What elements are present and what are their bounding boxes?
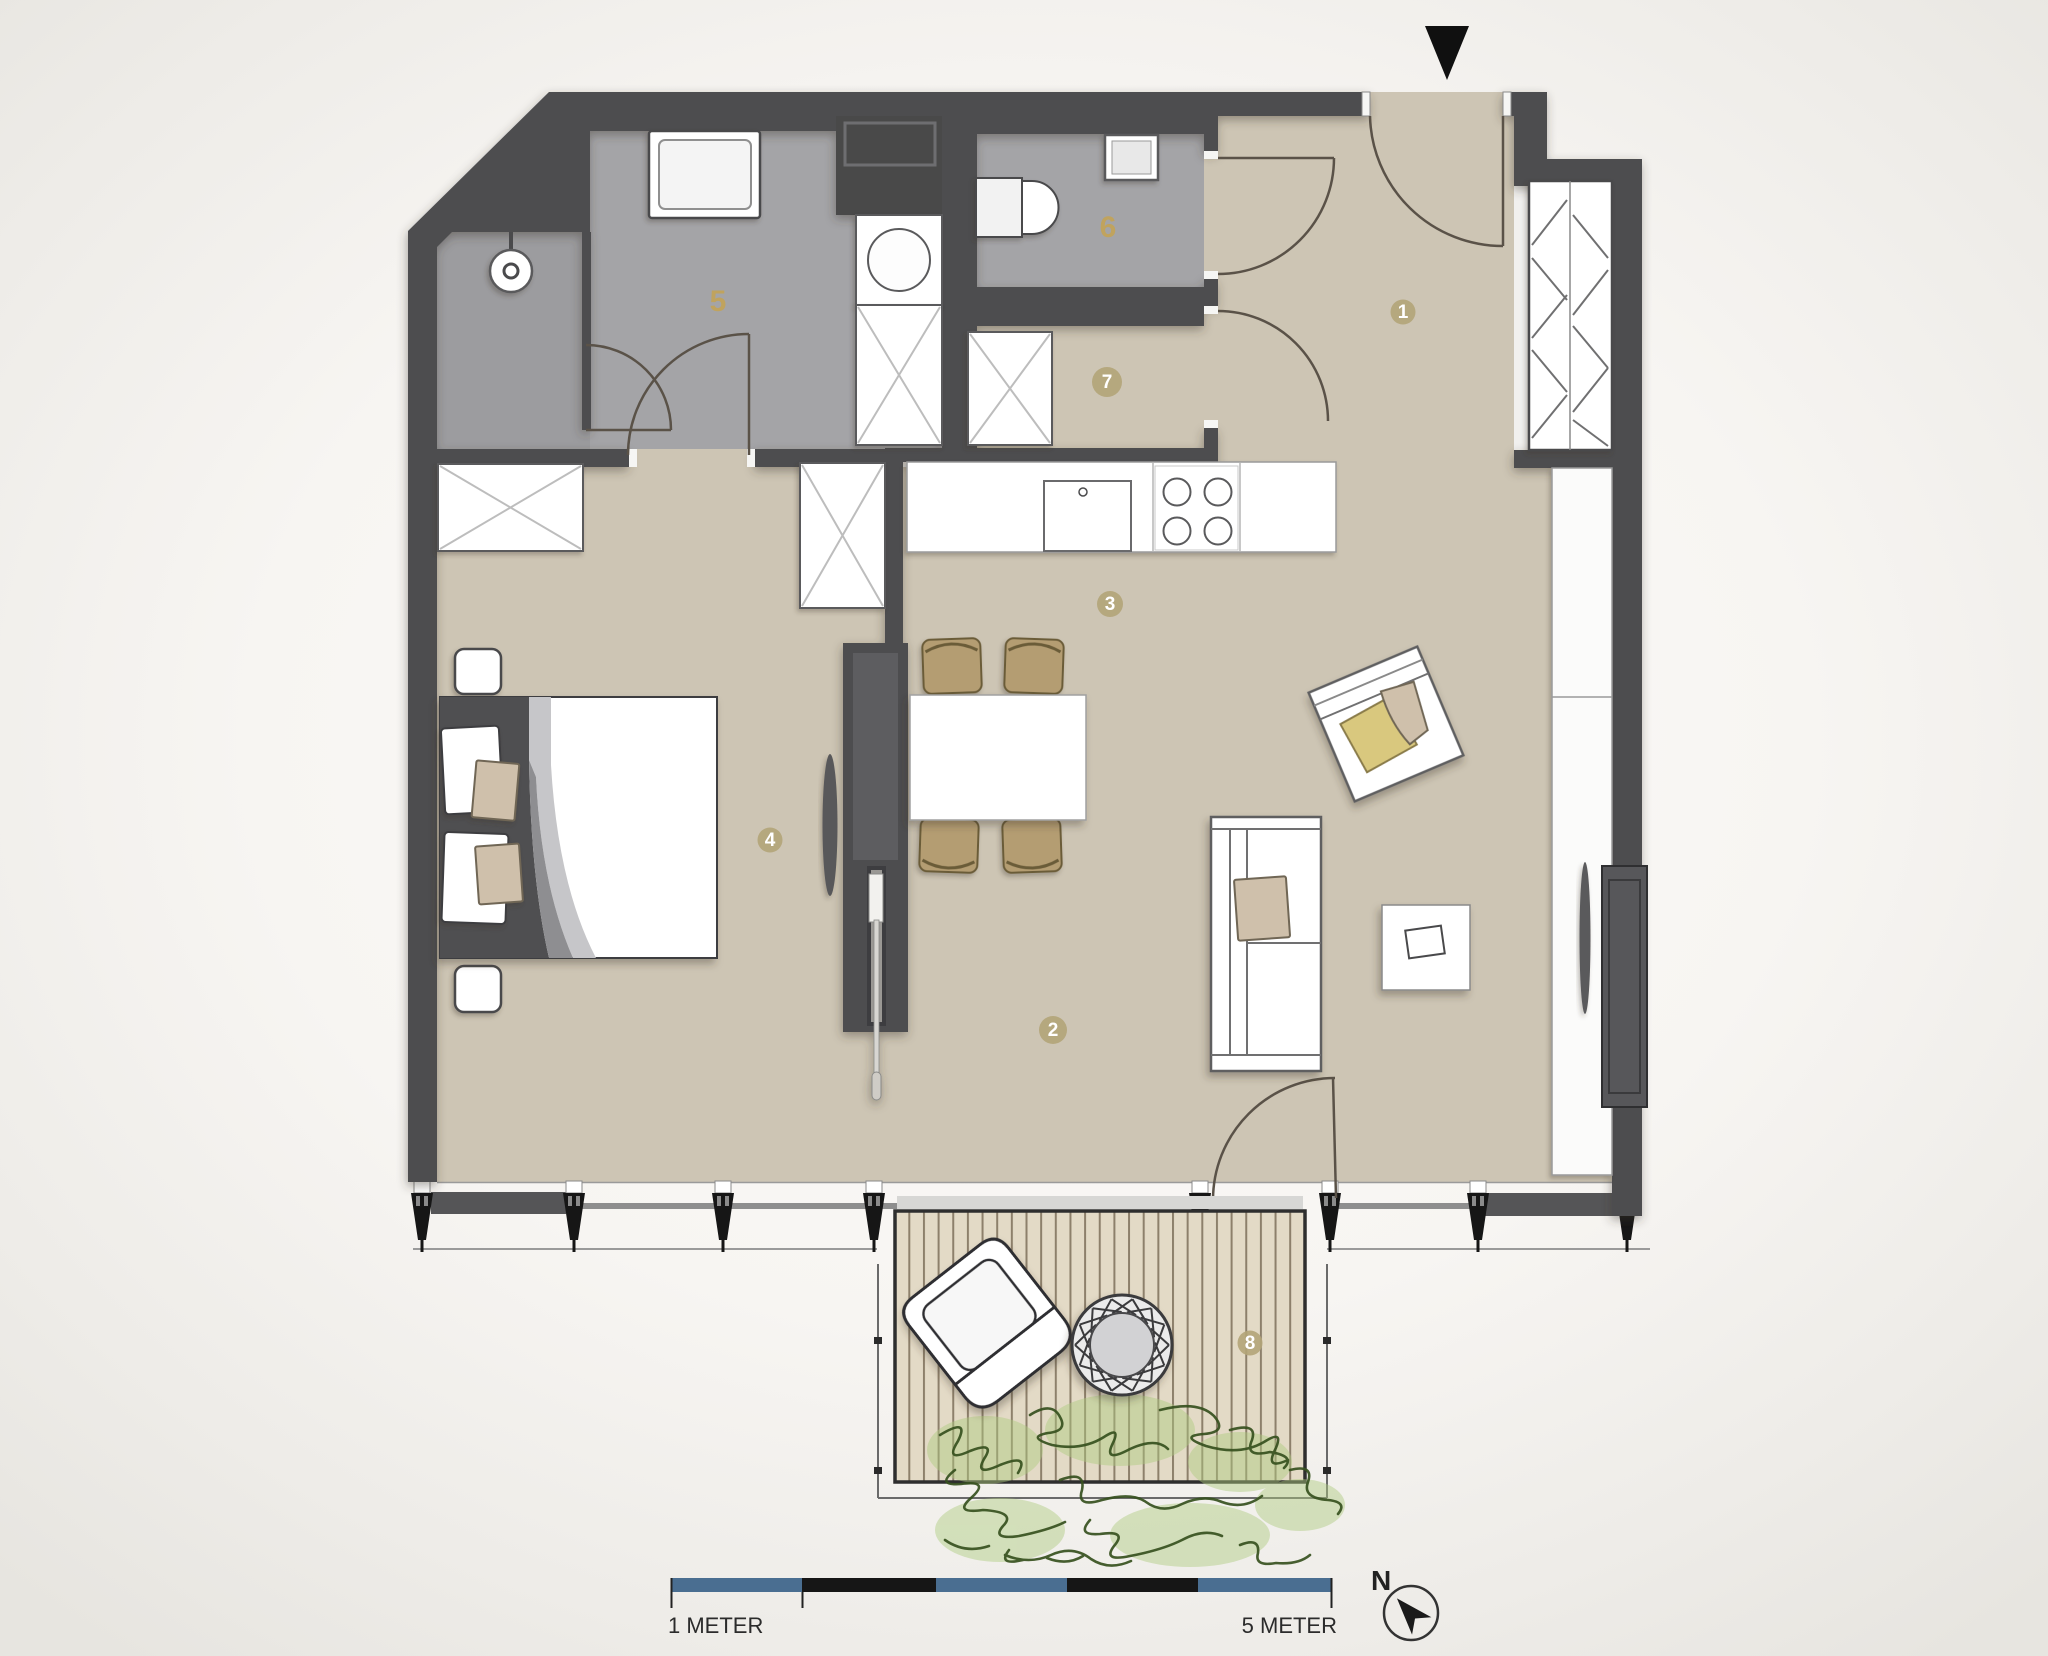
svg-text:1: 1 [1398, 302, 1409, 323]
svg-text:3: 3 [1105, 594, 1116, 615]
svg-text:5 METER: 5 METER [1242, 1613, 1337, 1638]
svg-text:6: 6 [1100, 211, 1117, 244]
svg-text:8: 8 [1245, 1333, 1256, 1354]
svg-text:1 METER: 1 METER [668, 1613, 763, 1638]
svg-text:4: 4 [765, 830, 776, 851]
svg-text:5: 5 [710, 285, 727, 318]
svg-text:7: 7 [1102, 372, 1113, 393]
svg-text:2: 2 [1048, 1020, 1059, 1041]
svg-text:N: N [1371, 1565, 1391, 1596]
